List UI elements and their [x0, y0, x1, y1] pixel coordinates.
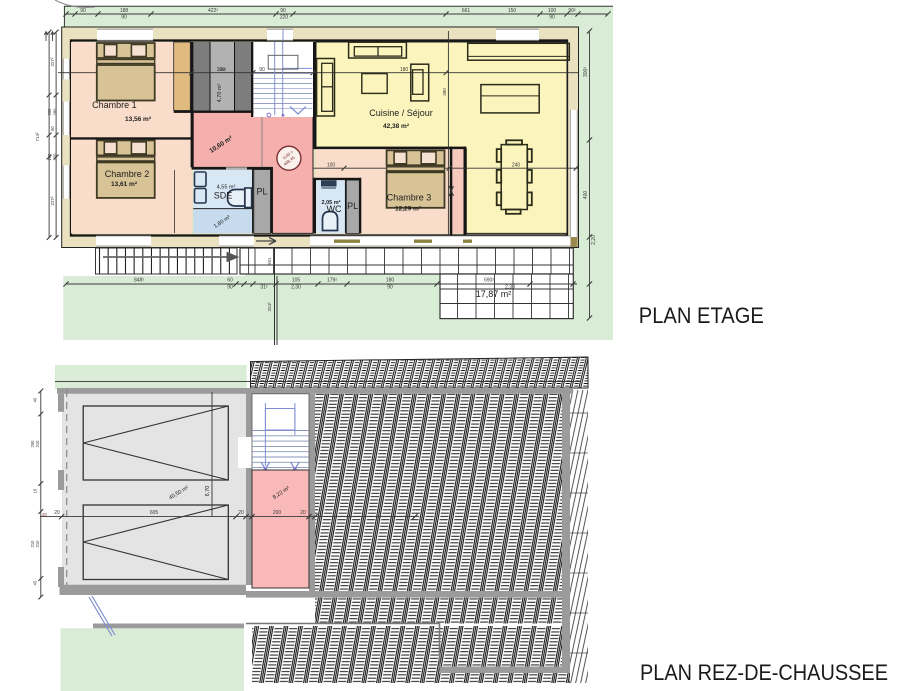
svg-text:601: 601: [267, 257, 272, 265]
svg-text:90: 90: [280, 8, 286, 14]
svg-text:90: 90: [80, 8, 86, 14]
svg-text:20: 20: [238, 510, 244, 516]
svg-text:90: 90: [549, 15, 555, 21]
svg-text:16: 16: [33, 488, 38, 493]
svg-text:20: 20: [54, 510, 60, 516]
svg-text:2,30: 2,30: [505, 285, 515, 291]
svg-text:80: 80: [50, 126, 55, 131]
svg-text:220: 220: [53, 153, 58, 161]
svg-text:31²: 31²: [260, 285, 268, 291]
svg-text:100: 100: [327, 163, 336, 169]
svg-text:12,29 m²: 12,29 m²: [395, 206, 422, 213]
svg-text:400: 400: [583, 191, 589, 200]
svg-text:90: 90: [121, 15, 127, 21]
svg-text:13,56 m²: 13,56 m²: [125, 116, 152, 123]
svg-text:20: 20: [300, 510, 306, 516]
svg-text:105: 105: [292, 278, 301, 284]
svg-text:Cuisine / Séjour: Cuisine / Séjour: [369, 108, 433, 118]
svg-text:175: 175: [254, 376, 262, 381]
svg-text:20: 20: [42, 512, 47, 517]
svg-text:150: 150: [508, 8, 517, 14]
svg-text:Chambre 3: Chambre 3: [387, 193, 432, 203]
svg-text:90: 90: [227, 285, 233, 291]
svg-text:100: 100: [548, 8, 557, 14]
svg-text:179²: 179²: [327, 278, 337, 284]
svg-text:180: 180: [386, 278, 395, 284]
svg-text:Chambre 1: Chambre 1: [92, 100, 137, 110]
svg-text:714²: 714²: [35, 132, 40, 142]
svg-text:220: 220: [280, 15, 289, 21]
svg-text:280: 280: [53, 108, 58, 116]
svg-text:40: 40: [33, 397, 38, 402]
svg-text:PLAN ETAGE: PLAN ETAGE: [639, 303, 764, 328]
svg-text:90: 90: [387, 285, 393, 291]
svg-text:90: 90: [259, 67, 265, 73]
svg-text:SDE: SDE: [214, 191, 233, 201]
svg-text:90²: 90²: [568, 8, 576, 14]
svg-text:WC: WC: [327, 204, 342, 214]
svg-text:45: 45: [33, 580, 38, 585]
svg-text:661: 661: [462, 8, 471, 14]
svg-text:200: 200: [273, 510, 282, 516]
svg-text:180: 180: [400, 67, 409, 73]
svg-text:100: 100: [47, 153, 52, 161]
svg-text:690²: 690²: [484, 278, 494, 284]
svg-text:210: 210: [35, 540, 40, 548]
svg-text:188: 188: [120, 8, 129, 14]
svg-text:227²: 227²: [50, 196, 55, 206]
svg-text:60: 60: [227, 278, 233, 284]
svg-text:2,30: 2,30: [291, 285, 301, 291]
svg-text:6,70: 6,70: [205, 486, 211, 497]
svg-text:17,87 m²: 17,87 m²: [476, 289, 512, 299]
svg-text:324²: 324²: [267, 302, 272, 312]
svg-text:210: 210: [35, 440, 40, 448]
svg-text:380: 380: [442, 88, 447, 96]
svg-text:550: 550: [47, 108, 52, 116]
svg-text:PL: PL: [347, 201, 358, 211]
svg-text:13,61 m²: 13,61 m²: [111, 181, 138, 188]
svg-text:PL: PL: [256, 187, 267, 197]
svg-text:42,38 m²: 42,38 m²: [383, 123, 410, 130]
svg-text:2,20: 2,20: [591, 235, 597, 245]
svg-text:200: 200: [218, 67, 226, 72]
svg-text:240: 240: [512, 163, 521, 169]
svg-text:605: 605: [150, 510, 159, 516]
svg-text:422²: 422²: [208, 8, 218, 14]
svg-text:4,70 m²: 4,70 m²: [217, 84, 223, 103]
svg-text:300²: 300²: [583, 67, 589, 77]
svg-text:848²: 848²: [134, 278, 144, 284]
svg-text:PLAN REZ-DE-CHAUSSEE: PLAN REZ-DE-CHAUSSEE: [640, 660, 888, 685]
svg-text:227²: 227²: [50, 57, 55, 67]
svg-text:Chambre 2: Chambre 2: [105, 169, 150, 179]
